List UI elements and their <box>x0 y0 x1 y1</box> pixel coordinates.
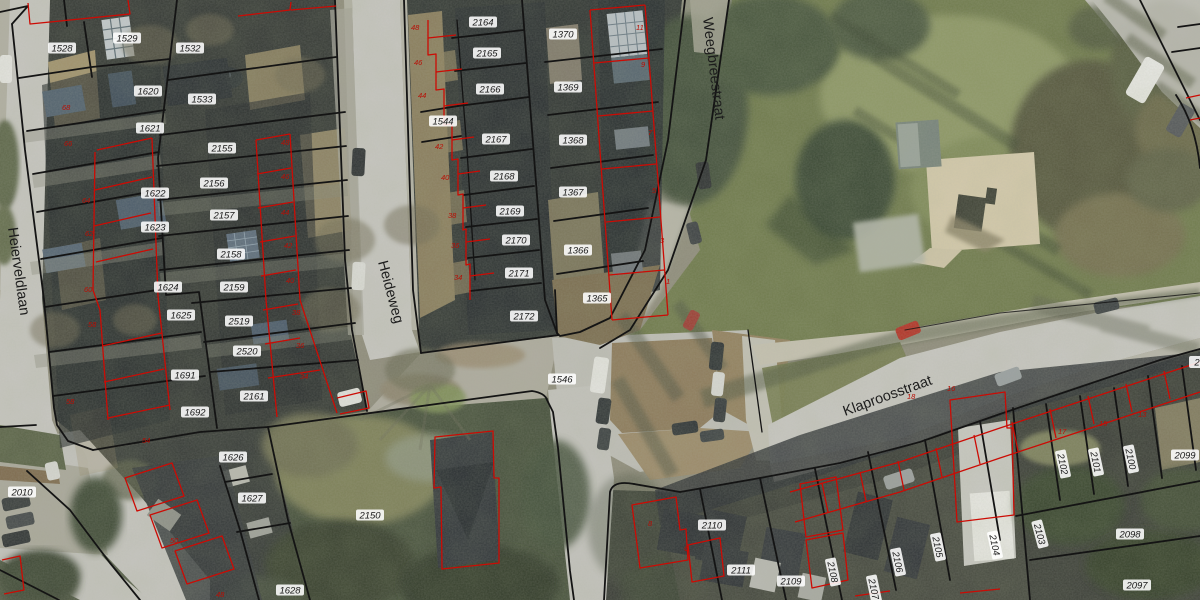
svg-text:44: 44 <box>281 208 289 217</box>
svg-text:1365: 1365 <box>586 294 608 305</box>
svg-text:2161: 2161 <box>242 392 264 403</box>
svg-text:2166: 2166 <box>478 85 501 96</box>
svg-text:58: 58 <box>66 397 75 406</box>
svg-text:2155: 2155 <box>210 144 233 155</box>
svg-text:42: 42 <box>435 142 444 151</box>
svg-text:42: 42 <box>284 241 293 250</box>
svg-text:1628: 1628 <box>279 586 301 597</box>
svg-text:1623: 1623 <box>144 223 166 234</box>
svg-text:62: 62 <box>85 229 94 238</box>
svg-text:66: 66 <box>64 139 73 148</box>
svg-text:2111: 2111 <box>730 566 751 577</box>
svg-text:38: 38 <box>292 308 301 317</box>
svg-text:46: 46 <box>281 172 290 181</box>
svg-text:48: 48 <box>216 590 225 599</box>
svg-text:36: 36 <box>296 341 305 350</box>
svg-text:48: 48 <box>411 23 420 32</box>
svg-text:1370: 1370 <box>552 30 574 41</box>
svg-text:2172: 2172 <box>512 312 535 323</box>
svg-text:50: 50 <box>170 536 179 545</box>
svg-text:2150: 2150 <box>358 511 381 522</box>
svg-text:1692: 1692 <box>184 408 206 419</box>
svg-text:64: 64 <box>82 196 90 205</box>
svg-text:2158: 2158 <box>219 250 242 261</box>
svg-text:2170: 2170 <box>504 236 527 247</box>
svg-text:1621: 1621 <box>139 124 160 135</box>
svg-text:1369: 1369 <box>557 83 579 94</box>
svg-text:2010: 2010 <box>10 488 33 499</box>
svg-text:2109: 2109 <box>779 577 802 588</box>
svg-text:1528: 1528 <box>51 44 73 55</box>
svg-text:38: 38 <box>448 211 457 220</box>
svg-text:2156: 2156 <box>202 179 225 190</box>
svg-text:54: 54 <box>142 436 150 445</box>
svg-text:13: 13 <box>1138 410 1147 419</box>
svg-text:34: 34 <box>300 372 308 381</box>
svg-text:40: 40 <box>441 173 450 182</box>
svg-text:2099: 2099 <box>1173 451 1196 462</box>
svg-text:1546: 1546 <box>551 375 573 386</box>
svg-text:1626: 1626 <box>222 453 244 464</box>
svg-text:1627: 1627 <box>241 494 263 505</box>
svg-text:2159: 2159 <box>222 283 245 294</box>
svg-text:2164: 2164 <box>471 18 493 29</box>
svg-text:34: 34 <box>454 273 462 282</box>
svg-text:44: 44 <box>418 91 426 100</box>
svg-text:2110: 2110 <box>701 521 723 532</box>
svg-text:1622: 1622 <box>144 189 166 200</box>
svg-text:2097: 2097 <box>1125 581 1148 592</box>
svg-text:1691: 1691 <box>174 371 195 382</box>
svg-text:68: 68 <box>62 103 71 112</box>
svg-text:2167: 2167 <box>484 135 507 146</box>
svg-text:2: 2 <box>1193 358 1200 369</box>
svg-text:58: 58 <box>88 320 97 329</box>
svg-text:46: 46 <box>414 58 423 67</box>
svg-text:1367: 1367 <box>562 188 584 199</box>
svg-text:1533: 1533 <box>191 95 213 106</box>
svg-text:1620: 1620 <box>137 87 159 98</box>
svg-text:1532: 1532 <box>179 44 201 55</box>
svg-text:1544: 1544 <box>432 117 453 128</box>
svg-text:1366: 1366 <box>567 246 589 257</box>
svg-text:60: 60 <box>84 285 93 294</box>
svg-text:18: 18 <box>907 392 916 401</box>
svg-text:16: 16 <box>947 384 956 393</box>
svg-text:48: 48 <box>281 138 290 147</box>
svg-text:17: 17 <box>1058 427 1067 436</box>
svg-text:2519: 2519 <box>227 317 250 328</box>
svg-text:40: 40 <box>286 276 295 285</box>
svg-text:2165: 2165 <box>475 49 498 60</box>
svg-text:1529: 1529 <box>116 34 138 45</box>
svg-text:2098: 2098 <box>1118 530 1141 541</box>
svg-text:2169: 2169 <box>498 207 521 218</box>
svg-text:1368: 1368 <box>562 136 584 147</box>
svg-text:36: 36 <box>451 241 460 250</box>
svg-text:2168: 2168 <box>492 172 515 183</box>
svg-text:1: 1 <box>666 277 670 286</box>
svg-text:2171: 2171 <box>507 269 529 280</box>
svg-text:1625: 1625 <box>170 311 192 322</box>
svg-text:2157: 2157 <box>212 211 235 222</box>
svg-text:1624: 1624 <box>157 283 178 294</box>
svg-text:15: 15 <box>1099 419 1108 428</box>
svg-text:11: 11 <box>636 23 644 32</box>
svg-text:2520: 2520 <box>235 347 258 358</box>
